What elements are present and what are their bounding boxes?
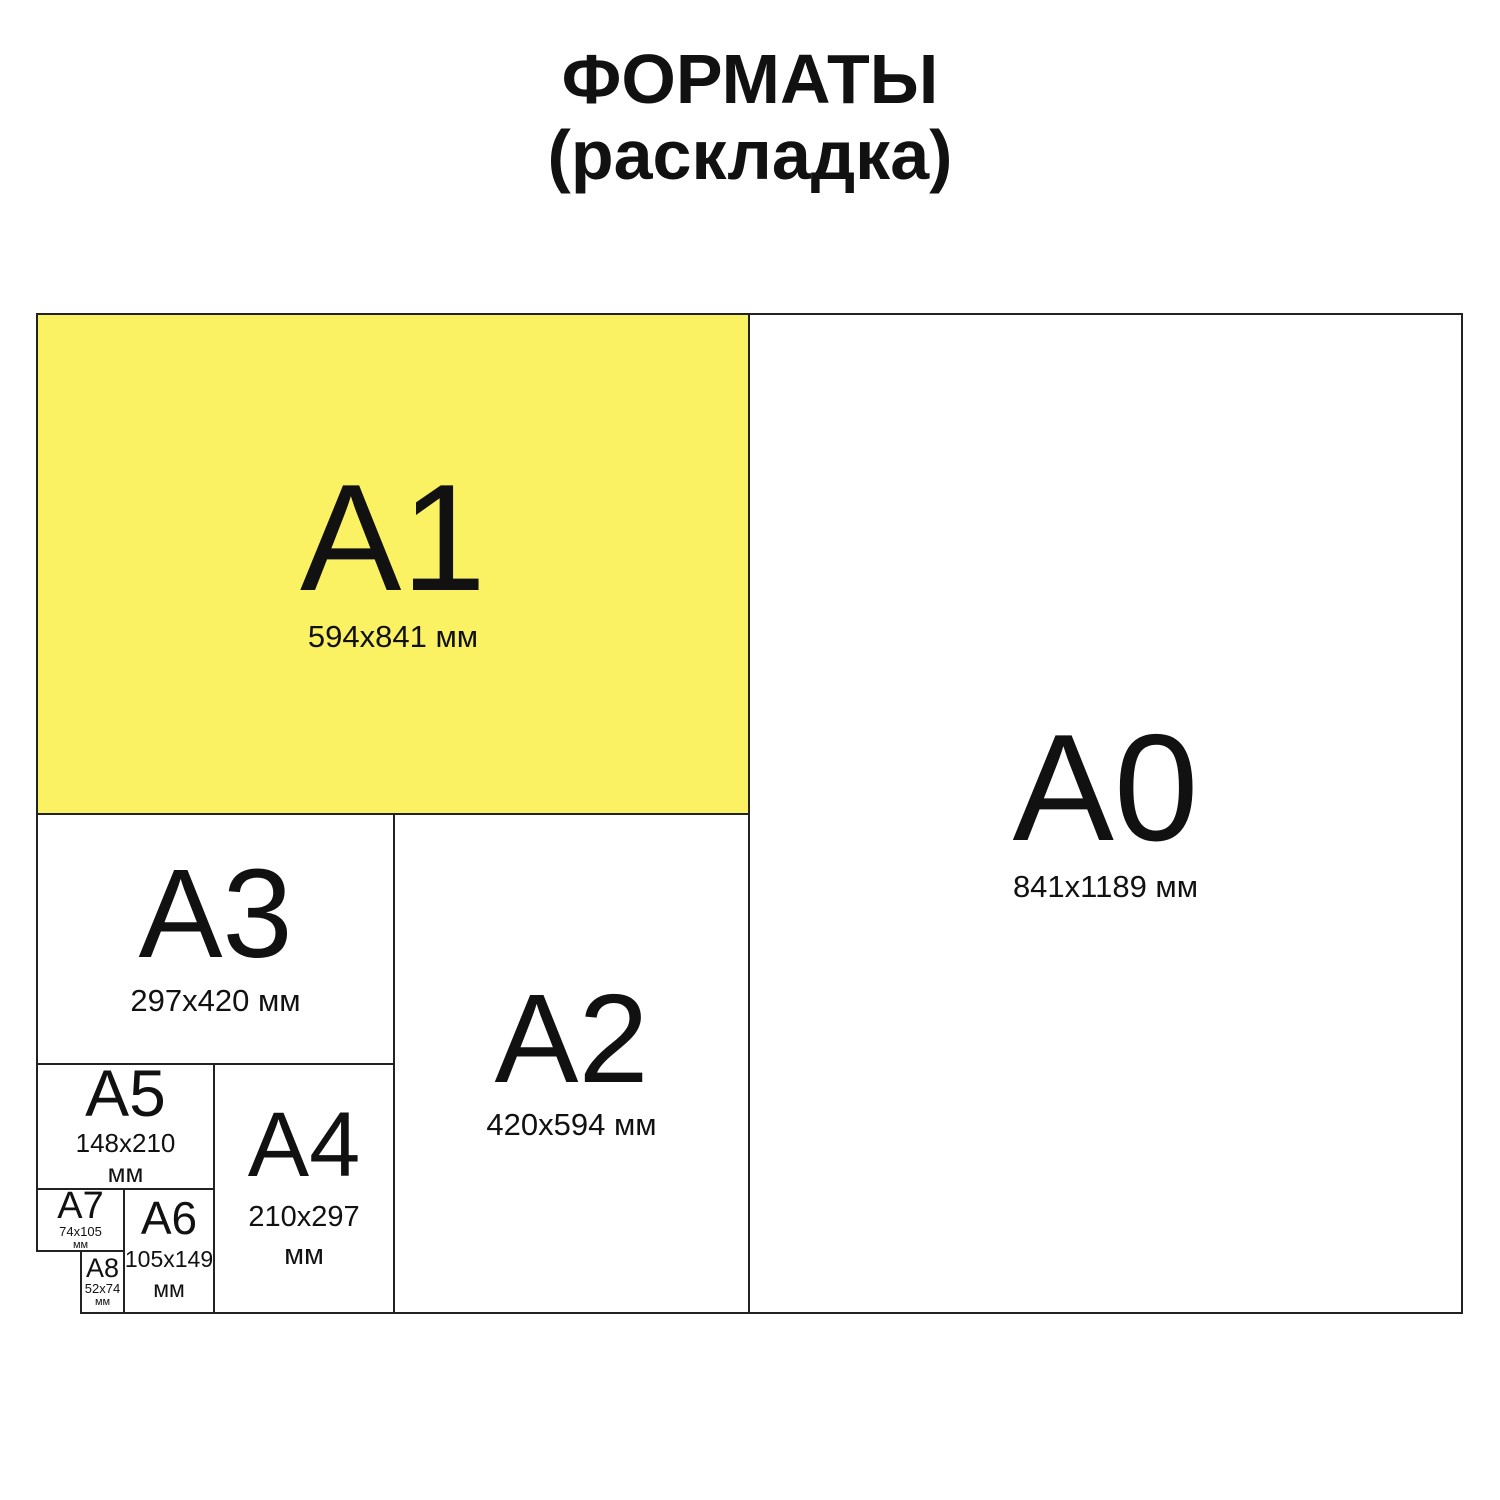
format-size-a6: 105x149 (125, 1245, 213, 1275)
format-size-a4: 210x297 (248, 1199, 359, 1237)
page-title: ФОРМАТЫ (раскладка) (0, 42, 1500, 193)
format-label-a0: A0 (1013, 720, 1199, 857)
format-box-a8: A8 52x74 мм (80, 1250, 125, 1314)
format-label-a5: A5 (85, 1065, 166, 1121)
title-line-1: ФОРМАТЫ (0, 42, 1500, 118)
format-label-a8: A8 (86, 1256, 119, 1280)
paper-formats-infographic: ФОРМАТЫ (раскладка) A1 594x841 мм A0 841… (0, 0, 1500, 1500)
format-box-a7: A7 74x105 мм (36, 1188, 125, 1252)
title-line-2: (раскладка) (0, 118, 1500, 194)
format-size-a7: 74x105 (59, 1225, 102, 1239)
format-box-a2: A2 420x594 мм (393, 813, 750, 1314)
format-size-a0: 841x1189 мм (1013, 867, 1198, 907)
format-unit-a8: мм (95, 1296, 110, 1308)
format-box-a3: A3 297x420 мм (36, 813, 395, 1065)
format-box-a0: A0 841x1189 мм (748, 313, 1463, 1314)
format-unit-a4: мм (284, 1237, 324, 1273)
format-unit-a5: мм (108, 1159, 144, 1189)
format-size-a5: 148x210 (76, 1129, 176, 1159)
format-box-a6: A6 105x149 мм (123, 1188, 215, 1314)
format-label-a6: A6 (141, 1198, 197, 1239)
format-box-a1: A1 594x841 мм (36, 313, 750, 815)
format-box-a4: A4 210x297 мм (213, 1063, 395, 1314)
format-box-a5: A5 148x210 мм (36, 1063, 215, 1190)
format-size-a1: 594x841 мм (308, 617, 478, 657)
format-label-a3: A3 (138, 857, 292, 970)
format-label-a7: A7 (57, 1189, 103, 1223)
format-size-a3: 297x420 мм (130, 981, 300, 1021)
format-unit-a6: мм (153, 1275, 185, 1304)
format-label-a1: A1 (300, 470, 486, 607)
format-size-a2: 420x594 мм (486, 1105, 656, 1145)
format-label-a2: A2 (494, 982, 648, 1095)
format-label-a4: A4 (248, 1104, 361, 1187)
format-size-a8: 52x74 (85, 1282, 120, 1296)
